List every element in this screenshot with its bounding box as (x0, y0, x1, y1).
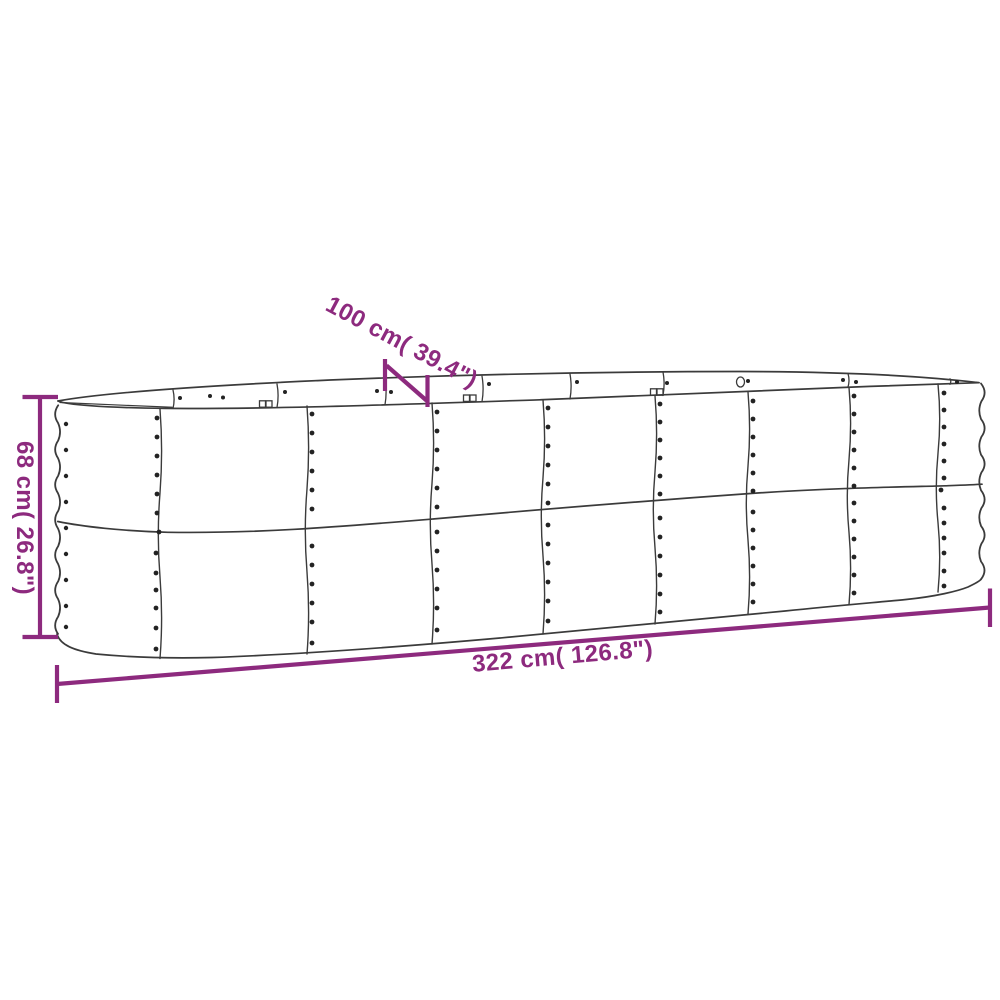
rim-tick (848, 374, 849, 388)
rim-tick (950, 379, 951, 385)
bed-outline (55, 372, 984, 658)
middle-seam-line (58, 484, 982, 532)
rim-ring-fitting (737, 377, 745, 387)
rim-clip (464, 395, 470, 401)
rim-clip (651, 389, 657, 395)
rim-clip (266, 401, 272, 407)
rim-tick (570, 374, 571, 399)
rim-tick (173, 390, 174, 409)
panel-seam (305, 406, 308, 654)
panel-seam (746, 392, 749, 614)
rim-clip (470, 395, 476, 401)
depth-dim-line (387, 366, 427, 401)
rim-seam-ticks (173, 372, 951, 409)
rim-back-edge (58, 372, 979, 402)
product-dimension-diagram: 100 cm( 39.4") 68 cm( 26.8") 322 cm( 126… (0, 0, 1000, 1000)
panel-seam (653, 396, 656, 624)
rim-clips (260, 377, 745, 407)
panel-seam (541, 400, 544, 634)
height-dimension-label: 68 cm( 26.8") (10, 441, 38, 595)
panel-seam (847, 387, 850, 605)
rim-tick (277, 384, 278, 408)
rim-tick (482, 376, 483, 402)
panel-seam (936, 384, 939, 592)
rivet-dots (64, 378, 959, 651)
left-corrugated-edge (55, 405, 60, 634)
right-corrugated-edge (979, 384, 984, 580)
panel-seam (430, 403, 433, 644)
rim-clip (260, 401, 266, 407)
raised-bed-drawing (0, 0, 1000, 1000)
